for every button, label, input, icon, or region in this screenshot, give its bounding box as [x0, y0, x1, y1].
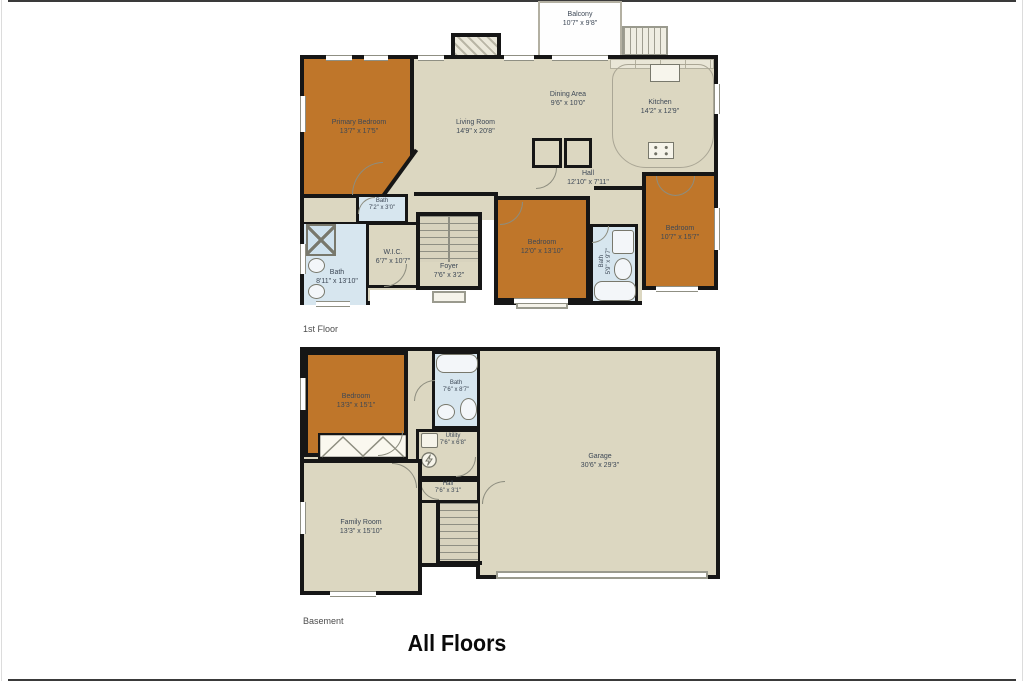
label-family-room: Family Room 13'3" x 15'10" — [302, 518, 420, 537]
room-name: Bedroom — [494, 238, 590, 247]
room-name: Bath — [599, 231, 606, 291]
room-dims: 14'2" x 12'9" — [616, 107, 704, 116]
window — [514, 298, 568, 304]
room-dims: 13'3" x 15'10" — [302, 527, 420, 536]
exterior-notch — [370, 290, 420, 306]
label-primary-bedroom: Primary Bedroom 13'7" x 17'5" — [311, 118, 407, 137]
label-balcony: Balcony 10'7" x 9'8" — [538, 10, 622, 29]
page-title: All Floors — [308, 630, 606, 657]
page-top-edge — [8, 0, 1016, 2]
sink-icon — [437, 404, 455, 420]
label-bath-middle: Bath 5'9" x 9'7" — [599, 231, 613, 291]
room-name: Bedroom — [304, 392, 408, 401]
sliding-door — [552, 55, 608, 61]
room-name: Primary Bedroom — [311, 118, 407, 127]
room-dims: 10'7" x 15'7" — [642, 233, 718, 242]
room-dims: 8'11" x 13'10" — [306, 277, 368, 286]
kitchen-sink-icon — [650, 64, 680, 82]
room-dims: 12'0" x 13'10" — [494, 247, 590, 256]
entry-stoop — [432, 291, 466, 303]
window — [418, 55, 444, 61]
room-name: Living Room — [428, 118, 523, 127]
exterior-stairs — [622, 26, 668, 56]
wall-living-bottom — [414, 192, 498, 196]
garage-door — [496, 571, 708, 579]
label-foyer: Foyer 7'6" x 3'2" — [418, 262, 480, 281]
room-name: W.I.C. — [368, 248, 418, 257]
label-wic: W.I.C. 6'7" x 10'7" — [368, 248, 418, 267]
room-name: Bedroom — [642, 224, 718, 233]
label-bedroom-basement: Bedroom 13'3" x 15'1" — [304, 392, 408, 411]
label-kitchen: Kitchen 14'2" x 12'9" — [616, 98, 704, 117]
stove-icon — [648, 142, 674, 159]
window — [714, 84, 720, 114]
page-right-edge — [1022, 0, 1023, 681]
window — [656, 286, 698, 292]
hall-closet — [564, 138, 592, 168]
first-floor-caption: 1st Floor — [303, 324, 338, 334]
toilet-icon — [614, 258, 632, 280]
window — [364, 55, 388, 61]
room-name: Dining Area — [526, 90, 610, 99]
wall-primary-right — [410, 59, 414, 157]
room-name: Hall — [416, 481, 480, 488]
exterior-notch — [642, 290, 724, 306]
room-dims: 14'9" x 20'8" — [428, 127, 523, 136]
basement-caption: Basement — [303, 616, 344, 626]
window — [316, 301, 350, 307]
room-name: Bath — [306, 268, 368, 277]
room-name: Hall — [536, 169, 640, 178]
room-dims: 13'3" x 15'1" — [304, 401, 408, 410]
sink-icon — [612, 230, 634, 254]
room-dims: 7'6" x 8'7" — [432, 387, 480, 394]
label-bedroom-right: Bedroom 10'7" x 15'7" — [642, 224, 718, 243]
room-dims: 10'7" x 9'8" — [538, 19, 622, 28]
room-dims: 7'6" x 3'2" — [418, 271, 480, 280]
bathtub-icon — [436, 354, 478, 373]
electrical-panel-icon — [420, 451, 438, 469]
window — [300, 96, 306, 132]
room-name: Kitchen — [616, 98, 704, 107]
label-dining-area: Dining Area 9'6" x 10'0" — [526, 90, 610, 109]
room-dims: 13'7" x 17'5" — [311, 127, 407, 136]
room-name: Utility — [426, 433, 480, 440]
label-bedroom-middle: Bedroom 12'0" x 13'10" — [494, 238, 590, 257]
floorplan-page: Balcony 10'7" x 9'8" Primary Bedroom 13'… — [0, 0, 1024, 681]
label-bath-primary: Bath 8'11" x 13'10" — [306, 268, 368, 287]
room-dims: 7'6" x 6'8" — [426, 440, 480, 447]
room-dims: 9'6" x 10'0" — [526, 99, 610, 108]
window — [504, 55, 534, 61]
label-bath-basement: Bath 7'6" x 8'7" — [432, 380, 480, 394]
label-garage: Garage 30'6" x 29'3" — [520, 452, 680, 471]
window — [326, 55, 352, 61]
room-name: Bath — [432, 380, 480, 387]
toilet-icon — [460, 398, 477, 420]
wall-stairs-basement-bottom — [436, 561, 482, 565]
room-name: Garage — [520, 452, 680, 461]
room-dims: 7'2" x 3'0" — [357, 205, 407, 212]
hall-closet — [532, 138, 562, 168]
label-hall: Hall 12'10" x 7'11" — [536, 169, 640, 188]
room-name: Family Room — [302, 518, 420, 527]
room-dims: 6'7" x 10'7" — [368, 257, 418, 266]
label-utility: Utility 7'6" x 6'8" — [426, 433, 480, 447]
exterior-notch — [482, 220, 494, 306]
stairs-basement — [440, 503, 478, 561]
electrical-panel — [420, 451, 438, 469]
label-living-room: Living Room 14'9" x 20'8" — [428, 118, 523, 137]
room-dims: 7'6" x 3'1" — [416, 488, 480, 495]
room-name: Balcony — [538, 10, 622, 19]
label-bath-small: Bath 7'2" x 3'0" — [357, 198, 407, 212]
room-dims: 12'10" x 7'11" — [536, 178, 640, 187]
room-dims: 5'9" x 9'7" — [606, 231, 613, 291]
label-hall-basement: Hall 7'6" x 3'1" — [416, 481, 480, 495]
window — [330, 591, 376, 597]
stairs-rail — [448, 216, 450, 262]
shower — [306, 224, 336, 256]
room-name: Bath — [357, 198, 407, 205]
room-dims: 30'6" x 29'3" — [520, 461, 680, 470]
page-left-edge — [1, 0, 2, 681]
room-name: Foyer — [418, 262, 480, 271]
